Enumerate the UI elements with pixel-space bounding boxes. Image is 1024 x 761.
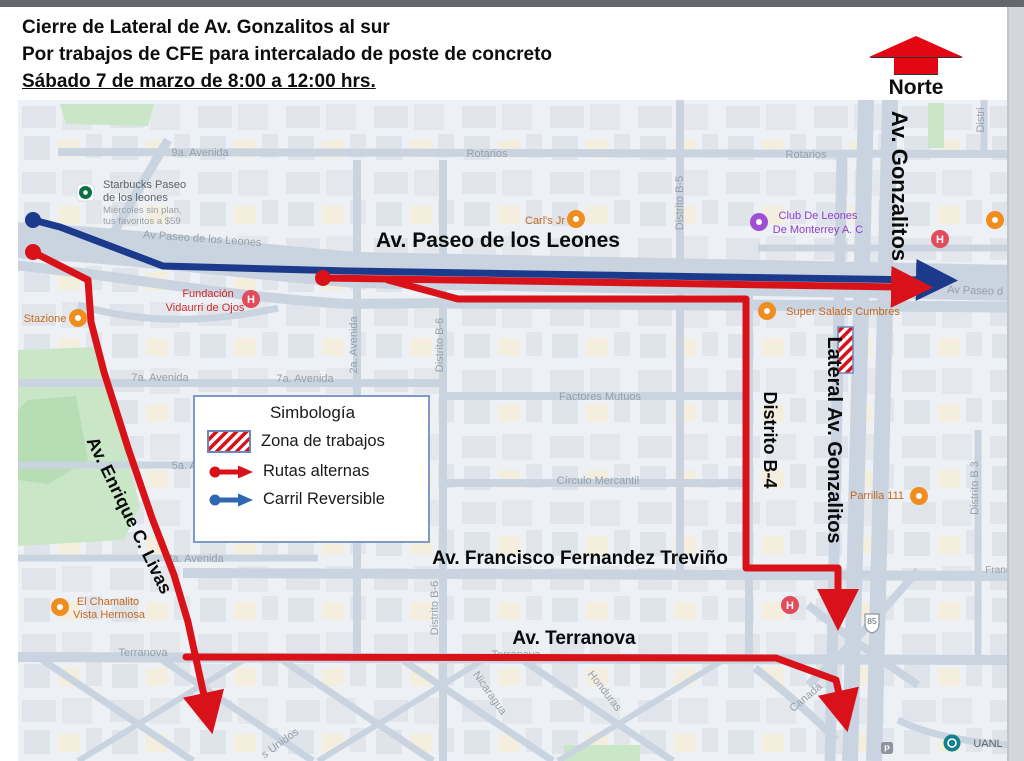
- poi-starbucks-promo-1: Miércoles sin plan,: [103, 205, 182, 216]
- street-label-paseo-small-right: Av Paseo d: [947, 284, 1003, 298]
- street-label-distrito-top-right: Distri: [975, 107, 987, 132]
- north-indicator: Norte: [866, 36, 966, 100]
- hospital-letter-2: H: [936, 234, 944, 246]
- reversible-route-start-dot: [25, 212, 41, 228]
- poi-club-leones-1: Club De Leones: [779, 210, 858, 222]
- poi-stazione: Stazione: [24, 313, 67, 325]
- avenue-label-lateral-gonzalitos: Lateral Av. Gonzalitos: [823, 336, 845, 543]
- street-label-7a-avenida-left: 7a. Avenida: [131, 372, 189, 384]
- avenue-label-terranova: Av. Terranova: [512, 628, 636, 649]
- starbucks-icon-dot: [83, 190, 88, 195]
- poi-carls-jr: Carl's Jr: [525, 215, 565, 227]
- stazione-icon-dot: [75, 315, 81, 321]
- alt-route-swatch-icon: [207, 464, 253, 480]
- street-label-rotarios-left: Rotarios: [467, 148, 508, 160]
- map-canvas: 9a. Avenida Rotarios Rotarios Av Paseo d…: [18, 100, 1008, 761]
- legend-alt-routes-label: Rutas alternas: [263, 462, 369, 481]
- legend-box: Simbología Zona de trabajos Rutas altern…: [193, 395, 430, 543]
- hospital-letter-3: H: [786, 600, 794, 612]
- poi-uanl: UANL: [973, 738, 1002, 750]
- poi-starbucks-name-2: de los leones: [103, 192, 168, 204]
- chamalito-icon-dot: [57, 604, 63, 610]
- legend-item-alt-routes: Rutas alternas: [207, 462, 418, 481]
- restaurant-icon-right-dot: [992, 217, 998, 223]
- title-line-1: Cierre de Lateral de Av. Gonzalitos al s…: [22, 14, 852, 41]
- parrilla-111-icon-dot: [916, 493, 922, 499]
- road-map: 9a. Avenida Rotarios Rotarios Av Paseo d…: [18, 100, 1008, 761]
- scan-right-edge: [1007, 7, 1024, 761]
- street-label-terranova-left: Terranova: [119, 647, 169, 659]
- street-label-9a-avenida: 9a. Avenida: [171, 147, 229, 159]
- flyer-header: Cierre de Lateral de Av. Gonzalitos al s…: [22, 14, 852, 95]
- legend-item-reversible: Carril Reversible: [207, 490, 418, 509]
- highway-85-number: 85: [867, 616, 877, 626]
- avenue-label-distrito-b4: Distrito B-4: [760, 391, 780, 488]
- legend-item-work-zone: Zona de trabajos: [207, 430, 418, 453]
- street-label-distrito-b6-lower: Distrito B-6: [429, 581, 441, 635]
- hospital-letter-1: H: [247, 294, 255, 306]
- street-label-distrito-b5: Distrito B-5: [674, 176, 686, 230]
- street-label-rotarios-right: Rotarios: [786, 149, 827, 161]
- reversible-lane-swatch-icon: [207, 492, 253, 508]
- street-label-franc: Franc: [985, 565, 1008, 576]
- legend-reversible-label: Carril Reversible: [263, 490, 385, 509]
- north-arrow-shaft: [894, 57, 938, 74]
- poi-starbucks-name-1: Starbucks Paseo: [103, 179, 186, 191]
- poi-parrilla-111: Parrilla 111: [850, 490, 904, 502]
- club-de-leones-icon-dot: [756, 219, 762, 225]
- poi-chamalito-2: Vista Hermosa: [73, 609, 146, 621]
- super-salads-icon-dot: [764, 308, 770, 314]
- street-label-3a-avenida: 3a. Avenida: [166, 553, 224, 565]
- uanl-icon: [944, 735, 961, 752]
- alt-route-paseo-start-dot: [315, 270, 331, 286]
- carls-jr-icon-dot: [573, 216, 579, 222]
- title-line-2: Por trabajos de CFE para intercalado de …: [22, 41, 852, 68]
- poi-fundacion-2: Vidaurri de Ojos: [166, 302, 245, 314]
- alt-route-livas-start-dot: [25, 244, 41, 260]
- street-label-distrito-b6-upper: Distrito B-6: [434, 318, 446, 372]
- north-arrow-icon: [869, 36, 963, 57]
- poi-fundacion-1: Fundación: [182, 288, 233, 300]
- street-label-circulo-mercantil: Círculo Mercantil: [557, 475, 640, 487]
- street-label-7a-avenida-right: 7a. Avenida: [276, 373, 334, 385]
- work-zone-swatch-icon: [207, 430, 251, 453]
- scan-top-edge: [0, 0, 1024, 7]
- legend-work-zone-label: Zona de trabajos: [261, 432, 385, 451]
- street-label-2a-avenida: 2a. Avenida: [348, 315, 360, 373]
- poi-starbucks-promo-2: tus favoritos a $59: [103, 216, 181, 227]
- avenue-label-paseo: Av. Paseo de los Leones: [376, 229, 620, 252]
- poi-super-salads: Super Salads Cumbres: [786, 306, 900, 318]
- poi-club-leones-2: De Monterrey A. C: [773, 224, 864, 236]
- street-label-factores-mutuos: Factores Mutuos: [559, 391, 641, 403]
- title-line-3-date: Sábado 7 de marzo de 8:00 a 12:00 hrs.: [22, 68, 852, 95]
- parking-letter: P: [884, 744, 890, 754]
- north-label: Norte: [866, 76, 966, 100]
- avenue-label-gonzalitos: Av. Gonzalitos: [887, 111, 912, 261]
- avenue-label-trevino: Av. Francisco Fernandez Treviño: [432, 548, 728, 569]
- legend-title: Simbología: [207, 403, 418, 423]
- street-label-distrito-b3: Distrito B 3: [969, 461, 981, 515]
- closure-flyer: Cierre de Lateral de Av. Gonzalitos al s…: [0, 0, 1024, 761]
- poi-chamalito-1: El Chamalito: [77, 596, 139, 608]
